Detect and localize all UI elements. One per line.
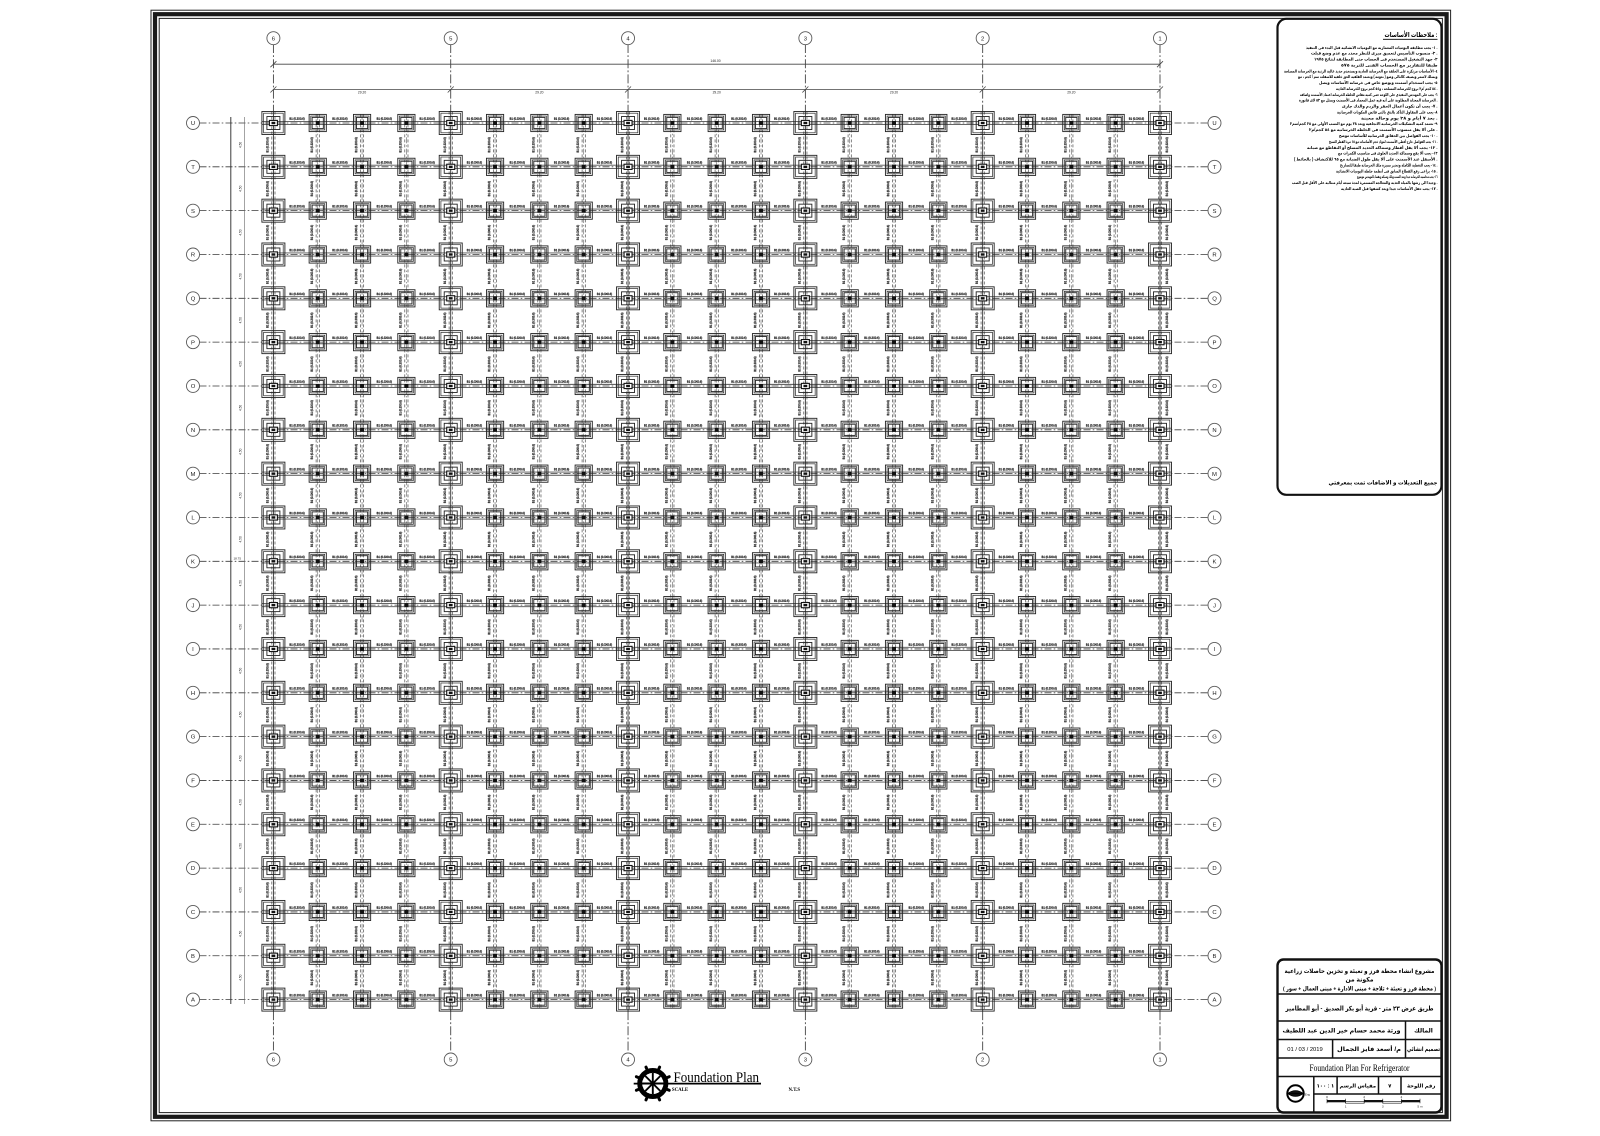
svg-text:وجيدا الى رشها بالمياه العذبة: وجيدا الى رشها بالمياه العذبة والمعالجة … <box>1292 180 1438 185</box>
svg-text:E: E <box>1213 822 1217 828</box>
svg-text:١٦- يجب محاسبية الخرسانة جيدا: ١٦- يجب محاسبية الخرسانة جيدا وبعد النسب… <box>1357 174 1438 179</box>
svg-text:146.00: 146.00 <box>710 59 720 63</box>
svg-text:4.50: 4.50 <box>238 711 242 717</box>
svg-text:ملاحظات الأساسات :: ملاحظات الأساسات : <box>1385 30 1438 39</box>
svg-text:مكونة من: مكونة من <box>1345 977 1373 984</box>
svg-text:Eng: Eng <box>1305 1093 1310 1097</box>
svg-text:4.50: 4.50 <box>238 931 242 937</box>
svg-text:المالك: المالك <box>1414 1028 1433 1035</box>
svg-text:F: F <box>1213 779 1217 785</box>
svg-text:4.50: 4.50 <box>238 361 242 367</box>
svg-text:( محطة فرز و تعبئة + ثلاجة + م: ( محطة فرز و تعبئة + ثلاجة + مبنى الادار… <box>1283 987 1436 993</box>
svg-text:١٠- يجب الفواصل بين الحقائق ال: ١٠- يجب الفواصل بين الحقائق الخرسانية لل… <box>1339 133 1438 138</box>
svg-text:G: G <box>191 735 196 741</box>
svg-text:29.20: 29.20 <box>358 91 366 95</box>
svg-text:4.50: 4.50 <box>238 229 242 235</box>
svg-text:T: T <box>1213 165 1217 171</box>
svg-text:مقياس الرسم: مقياس الرسم <box>1340 1083 1377 1089</box>
svg-text:29.20: 29.20 <box>890 91 898 95</box>
svg-text:A: A <box>191 998 195 1004</box>
svg-text:D: D <box>191 866 195 872</box>
svg-text:٣- جهد التشغيل المستخدم فى الح: ٣- جهد التشغيل المستخدم فى الحساب حتى ال… <box>1314 57 1438 62</box>
svg-text:٤- الأساسات مرتكزة على الحلقة: ٤- الأساسات مرتكزة على الحلقة مع الخرسان… <box>1284 68 1438 73</box>
svg-text:١٢- يجب ألا يقل أقطار وسماكة ا: ١٢- يجب ألا يقل أقطار وسماكة الحديد المس… <box>1307 145 1438 150</box>
svg-text:4.50: 4.50 <box>238 317 242 323</box>
svg-text:5 m: 5 m <box>1417 1105 1423 1109</box>
svg-text:Foundation Plan: Foundation Plan <box>674 1070 760 1086</box>
svg-text:M: M <box>191 472 196 478</box>
svg-text:تصميم انشائي: تصميم انشائي <box>1407 1047 1440 1053</box>
svg-text:4.50: 4.50 <box>238 580 242 586</box>
svg-text:29.20: 29.20 <box>1067 91 1075 95</box>
svg-text:G: G <box>1212 735 1217 741</box>
svg-text:رقم اللوحة: رقم اللوحة <box>1407 1083 1435 1089</box>
svg-text:طريق عرض ٢٣ متر - قرية أبو بكر: طريق عرض ٢٣ متر - قرية أبو بكر الصديق - … <box>1285 1004 1434 1013</box>
svg-text:H: H <box>191 691 195 697</box>
svg-text:SCALE: SCALE <box>672 1088 689 1093</box>
svg-text:H: H <box>1212 691 1216 697</box>
svg-text:P: P <box>1213 340 1217 346</box>
svg-text:Q: Q <box>191 296 196 302</box>
svg-text:٥٤ كجم /م٣ بروج للخرسانة المسل: ٥٤ كجم /م٣ بروج للخرسانة المسلحة ، و٥٤ ك… <box>1336 86 1438 91</box>
svg-text:R: R <box>191 253 195 259</box>
svg-text:4.50: 4.50 <box>238 974 242 980</box>
svg-text:Q: Q <box>1212 296 1217 302</box>
svg-text:18.75: 18.75 <box>234 556 242 560</box>
svg-text:4.50: 4.50 <box>238 668 242 674</box>
svg-text:01 / 03 / 2019: 01 / 03 / 2019 <box>1287 1047 1322 1053</box>
svg-text:على ألا يقل منسوب الأسمنت فى ا: على ألا يقل منسوب الأسمنت فى الخلطة الخر… <box>1309 127 1438 132</box>
svg-text:Foundation Plan For Refrigerat: Foundation Plan For Refrigerator <box>1310 1063 1410 1073</box>
svg-text:4.50: 4.50 <box>238 492 242 498</box>
svg-text:4.50: 4.50 <box>238 887 242 893</box>
svg-text:4.50: 4.50 <box>238 273 242 279</box>
svg-text:29.20: 29.20 <box>713 91 721 95</box>
svg-text:٩- تعتمد كمية التشكيلات الخرسا: ٩- تعتمد كمية التشكيلات الخرسانية الاتجا… <box>1290 121 1438 126</box>
svg-text:M: M <box>1212 472 1217 478</box>
svg-text:مشروع انشاء محطة فرز و تعبئة و: مشروع انشاء محطة فرز و تعبئة و تخزين حاص… <box>1285 968 1435 975</box>
svg-text:3: 3 <box>1382 1105 1384 1109</box>
svg-text:٥- يجب استخدام أسمنت ويوضع خاص: ٥- يجب استخدام أسمنت ويوضع خاص فى خرسانة… <box>1319 80 1438 85</box>
svg-text:J: J <box>1213 603 1216 609</box>
svg-text:J: J <box>192 603 195 609</box>
svg-text:N: N <box>191 428 195 434</box>
svg-text:B: B <box>1213 954 1217 960</box>
svg-text:U: U <box>1212 121 1216 127</box>
svg-text:S: S <box>191 209 195 215</box>
svg-text:29.20: 29.20 <box>535 91 543 95</box>
svg-text:4.50: 4.50 <box>238 185 242 191</box>
svg-text:١٤- يجب التغطية الكاملة وتعتبر: ١٤- يجب التغطية الكاملة وتعتبر مميزة ملك… <box>1340 162 1438 167</box>
svg-text:بعد ٧ أيام و ٢٨ يوم وحالة معين: بعد ٧ أيام و ٢٨ يوم وحالة معينة . <box>1361 115 1438 120</box>
svg-text:ورثة محمد حسام خير الدين عبد ا: ورثة محمد حسام خير الدين عبد اللطيف <box>1283 1028 1401 1035</box>
svg-text:جميع التعديلات و الاضافات تمت: جميع التعديلات و الاضافات تمت بمعرفتي <box>1329 481 1438 487</box>
svg-text:O: O <box>191 384 196 390</box>
svg-text:K: K <box>1213 559 1217 565</box>
svg-text:4.50: 4.50 <box>238 536 242 542</box>
svg-text:2: 2 <box>981 36 984 42</box>
svg-text:ويسلك لاسمر ويضيف كالتالى وضع: ويسلك لاسمر ويضيف كالتالى وضع ( نعومة ) … <box>1298 74 1438 79</box>
svg-text:١٣- يجب ألا يقع وسماكة الحديد: ١٣- يجب ألا يقع وسماكة الحديد العلوى فى … <box>1338 151 1438 156</box>
svg-text:E: E <box>191 822 195 828</box>
svg-text:4.50: 4.50 <box>238 142 242 148</box>
svg-text:4.50: 4.50 <box>238 448 242 454</box>
svg-text:D: D <box>1212 866 1216 872</box>
svg-text:T: T <box>191 165 195 171</box>
svg-text:4.50: 4.50 <box>238 624 242 630</box>
svg-text:١١- يجب الفواصل خارج أقطى الأس: ١١- يجب الفواصل خارج أقطى الأسمنت لمواد … <box>1329 139 1438 144</box>
svg-text:4.50: 4.50 <box>238 843 242 849</box>
svg-text:0: 0 <box>1326 1095 1328 1099</box>
svg-text:4.50: 4.50 <box>238 405 242 411</box>
svg-text:1: 1 <box>1158 36 1161 42</box>
svg-text:طبقا للتقارير مع الحساب الفنى: طبقا للتقارير مع الحساب الفنى للتربة ٥٧٥ <box>1341 62 1438 67</box>
svg-text:١٥- يراعى رفع القطاع السابق فى: ١٥- يراعى رفع القطاع السابق فى أنظمة خلط… <box>1336 168 1438 173</box>
svg-text:١- يجب مطابقة اليوميات المعمار: ١- يجب مطابقة اليوميات المعمارية مع اليو… <box>1306 45 1438 50</box>
svg-text:4.50: 4.50 <box>238 799 242 805</box>
svg-text:٨- يجب على المقاول التأكد بالد: ٨- يجب على المقاول التأكد بالدق بالتي فا… <box>1337 109 1438 114</box>
svg-text:الأسفل عند الأسمنت على ألا يقل: الأسفل عند الأسمنت على ألا يقل طول الضبا… <box>1294 157 1438 162</box>
svg-text:O: O <box>1212 384 1217 390</box>
svg-text:N: N <box>1212 428 1216 434</box>
svg-text:1: 1 <box>1158 1058 1161 1064</box>
svg-text:الخرسانة المعدلة المطلوبة على: الخرسانة المعدلة المطلوبة على أنه فيه عم… <box>1299 98 1438 103</box>
svg-text:٢- منسوب التأسيس لتعميق ميرى ل: ٢- منسوب التأسيس لتعميق ميرى للنظر محدد … <box>1311 51 1438 56</box>
svg-text:١٧- يجب حفل الأساسات جيدا وبعد: ١٧- يجب حفل الأساسات جيدا وبعد كشفها قبل… <box>1341 186 1438 191</box>
svg-text:A: A <box>1213 998 1217 1004</box>
svg-text:N.T.S: N.T.S <box>789 1088 801 1093</box>
svg-text:S: S <box>1213 209 1217 215</box>
svg-text:٧- يجب أن تكون أعمال الحفر وال: ٧- يجب أن تكون أعمال الحفر والردم والدك … <box>1342 104 1438 109</box>
svg-text:P: P <box>191 340 195 346</box>
svg-text:4: 4 <box>1401 1095 1403 1099</box>
svg-text:م/ أسعد فايز الجمال: م/ أسعد فايز الجمال <box>1337 1045 1402 1053</box>
svg-text:C: C <box>1212 910 1217 916</box>
svg-text:F: F <box>191 779 195 785</box>
svg-text:R: R <box>1212 253 1216 259</box>
svg-text:U: U <box>191 121 195 127</box>
svg-text:B: B <box>191 954 195 960</box>
svg-text:C: C <box>191 910 196 916</box>
svg-text:2: 2 <box>1363 1095 1365 1099</box>
svg-text:٦- يجب على المهندس التنفيذي عل: ٦- يجب على المهندس التنفيذي على اللوحة ع… <box>1300 92 1438 97</box>
svg-text:1: 1 <box>1345 1105 1347 1109</box>
svg-text:4.50: 4.50 <box>238 755 242 761</box>
svg-text:2: 2 <box>981 1058 984 1064</box>
svg-text:K: K <box>191 559 195 565</box>
svg-text:١ : ١٠٠: ١ : ١٠٠ <box>1317 1083 1335 1089</box>
